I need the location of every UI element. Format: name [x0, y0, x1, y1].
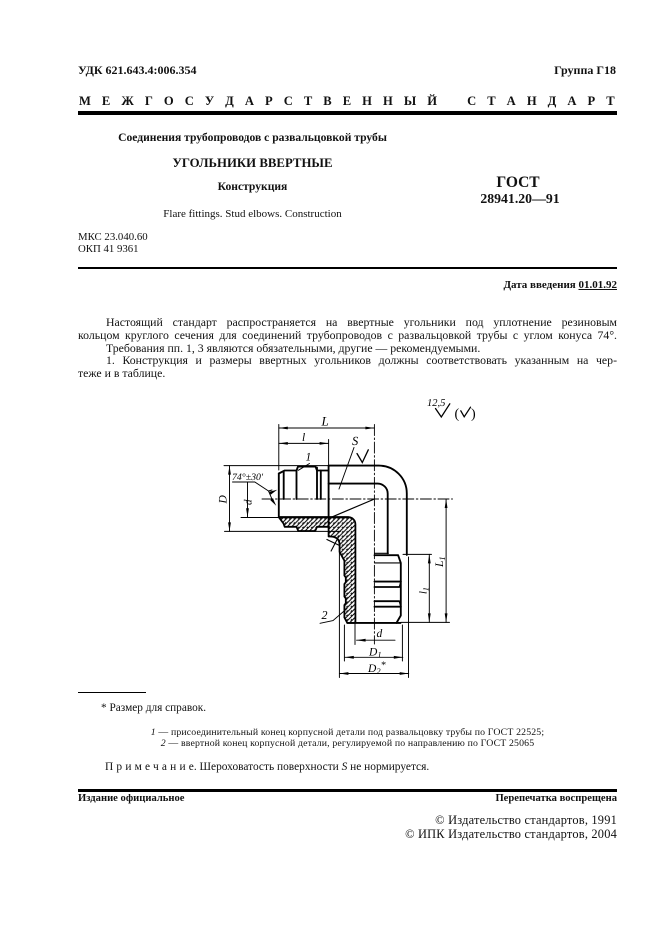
svg-text:(: ( — [455, 407, 460, 422]
svg-text:L1: L1 — [434, 556, 447, 568]
svg-text:D: D — [218, 495, 230, 505]
svg-text:l: l — [302, 432, 305, 444]
svg-text:D1: D1 — [368, 647, 382, 660]
svg-text:l1: l1 — [419, 587, 431, 594]
svg-text:): ) — [471, 407, 476, 422]
svg-text:1: 1 — [306, 452, 312, 464]
svg-text:L: L — [321, 414, 329, 429]
svg-text:S: S — [352, 434, 359, 448]
svg-text:12,5: 12,5 — [427, 398, 445, 409]
svg-text:2: 2 — [322, 608, 328, 622]
svg-text:d: d — [243, 499, 255, 505]
svg-text:74°±30′: 74°±30′ — [232, 472, 264, 483]
svg-text:d: d — [377, 628, 383, 640]
